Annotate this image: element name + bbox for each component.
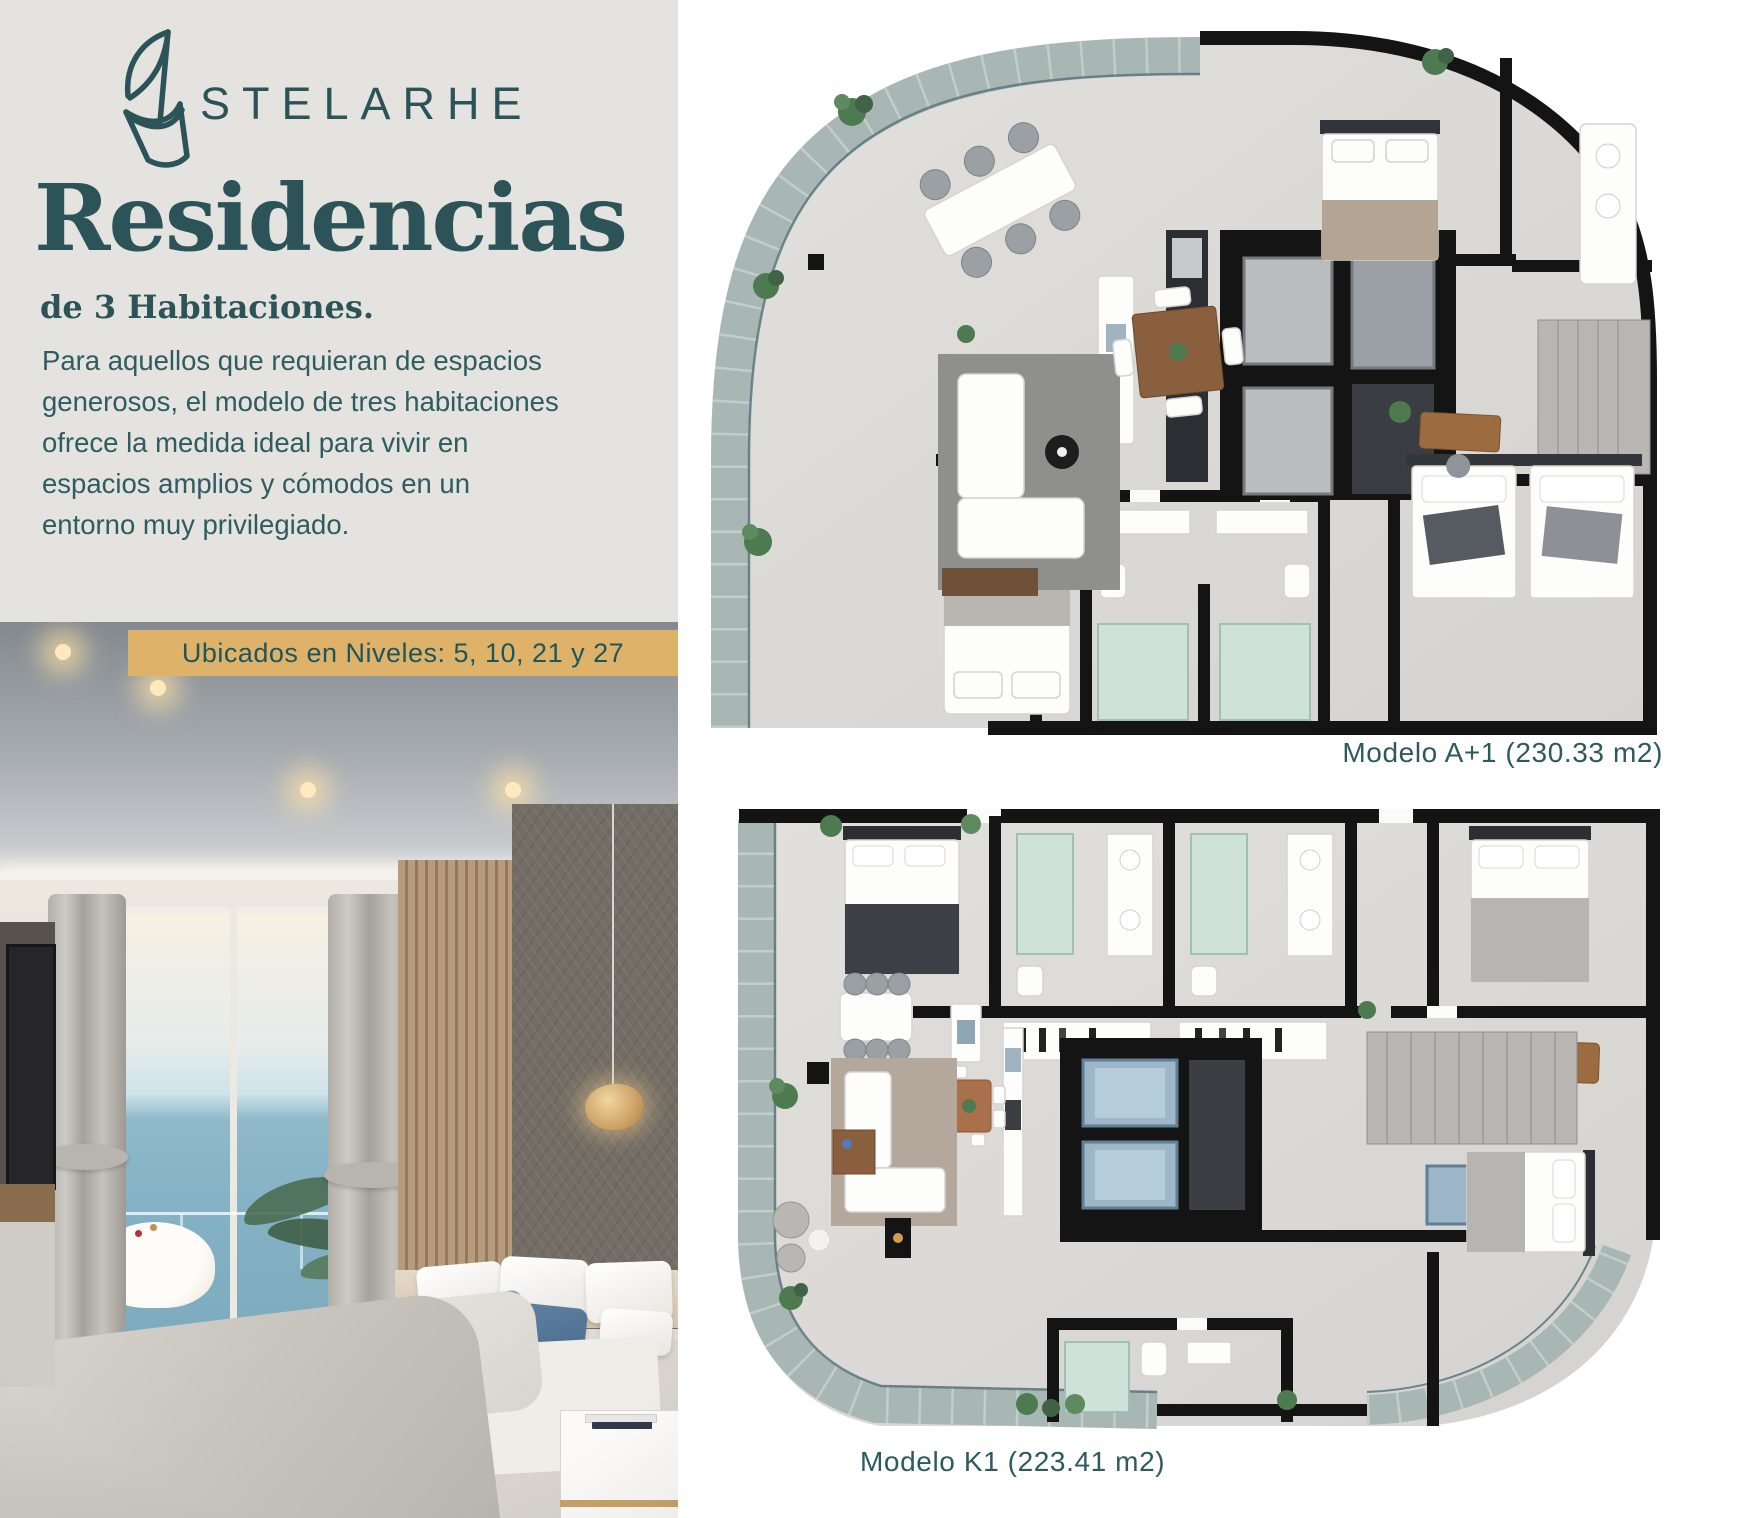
floor-plan-k1-image [727,800,1663,1442]
stelarhe-logo-icon [108,26,194,168]
floor-plan-a1-image [700,24,1663,736]
page-title: Residencias [34,168,626,269]
living-room [938,354,1120,596]
bathroom-right [1580,124,1636,284]
brand-lockup: STELARHE [108,26,528,166]
page-subtitle: de 3 Habitaciones. [40,288,374,326]
intro-paragraph: Para aquellos que requieran de espacios … [42,340,562,545]
bedroom-ocean-view-photo [0,622,678,1518]
bedroom-top-right [1469,826,1591,982]
plan-a1-label: Modelo A+1 (230.33 m2) [1342,737,1663,769]
dining-table [840,973,912,1061]
bedroom-top [1320,120,1440,260]
levels-banner: Ubicados en Niveles: 5, 10, 21 y 27 [128,630,678,676]
floor-plan-a1-figure [700,24,1663,741]
photo-vignette [0,622,678,1518]
stairs [1538,320,1650,474]
floor-plan-k1-figure [727,800,1663,1447]
elevator-core [1060,1038,1262,1230]
brand-name: STELARHE [200,78,534,130]
plan-k1-label: Modelo K1 (223.41 m2) [860,1446,1165,1478]
floor-plans-area: Modelo A+1 (230.33 m2) [678,0,1762,1518]
left-info-panel: STELARHE Residencias de 3 Habitaciones. … [0,0,678,622]
bedroom-bottom-right [1467,1150,1595,1256]
